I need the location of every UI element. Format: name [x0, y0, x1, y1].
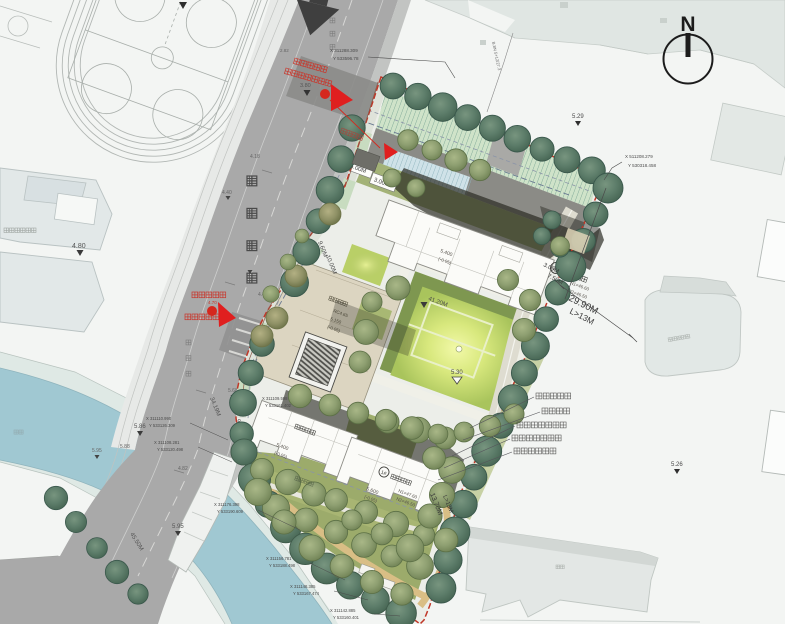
svg-text:Y 533161.402: Y 533161.402	[265, 403, 292, 408]
svg-text:X 311142.885: X 311142.885	[330, 608, 356, 613]
svg-text:Y 533126.309: Y 533126.309	[149, 423, 176, 428]
svg-text:5.30: 5.30	[451, 370, 463, 376]
svg-text:4.80: 4.80	[72, 243, 86, 250]
svg-text:X 511208.279: X 511208.279	[625, 154, 653, 159]
svg-text:N: N	[680, 13, 695, 36]
svg-text:X 311176.398: X 311176.398	[214, 502, 240, 507]
svg-text:5.26: 5.26	[671, 462, 683, 468]
svg-text:5.95: 5.95	[172, 524, 184, 530]
svg-text:2.82: 2.82	[280, 48, 289, 53]
svg-text:Y 533190.609: Y 533190.609	[217, 509, 244, 514]
svg-text:5.86: 5.86	[134, 424, 146, 430]
svg-text:X 311110.990: X 311110.990	[146, 416, 172, 421]
svg-text:5.29: 5.29	[572, 114, 584, 120]
svg-text:Y 533596.78: Y 533596.78	[333, 56, 359, 61]
svg-text:4.70: 4.70	[208, 300, 217, 305]
svg-text:X 311108.281: X 311108.281	[154, 440, 180, 445]
svg-text:X 311109.598: X 311109.598	[262, 396, 288, 401]
svg-text:4.40: 4.40	[222, 190, 232, 196]
svg-text:4.18: 4.18	[250, 154, 260, 160]
svg-text:4.82: 4.82	[178, 466, 188, 472]
svg-text:5.95: 5.95	[92, 448, 102, 454]
svg-text:Y 533167.474: Y 533167.474	[293, 591, 320, 596]
svg-text:Y 533188.498: Y 533188.498	[269, 563, 296, 568]
svg-text:Y 533120.498: Y 533120.498	[157, 447, 184, 452]
svg-text:Y 533160.401: Y 533160.401	[333, 615, 360, 620]
svg-text:X 311156.781: X 311156.781	[266, 556, 292, 561]
svg-text:X 311288.309: X 311288.309	[330, 48, 358, 53]
svg-text:5.88: 5.88	[120, 444, 130, 450]
svg-text:Y 530318.458: Y 530318.458	[628, 163, 656, 168]
svg-text:X 311148.385: X 311148.385	[290, 584, 316, 589]
svg-text:3.80: 3.80	[300, 83, 311, 89]
